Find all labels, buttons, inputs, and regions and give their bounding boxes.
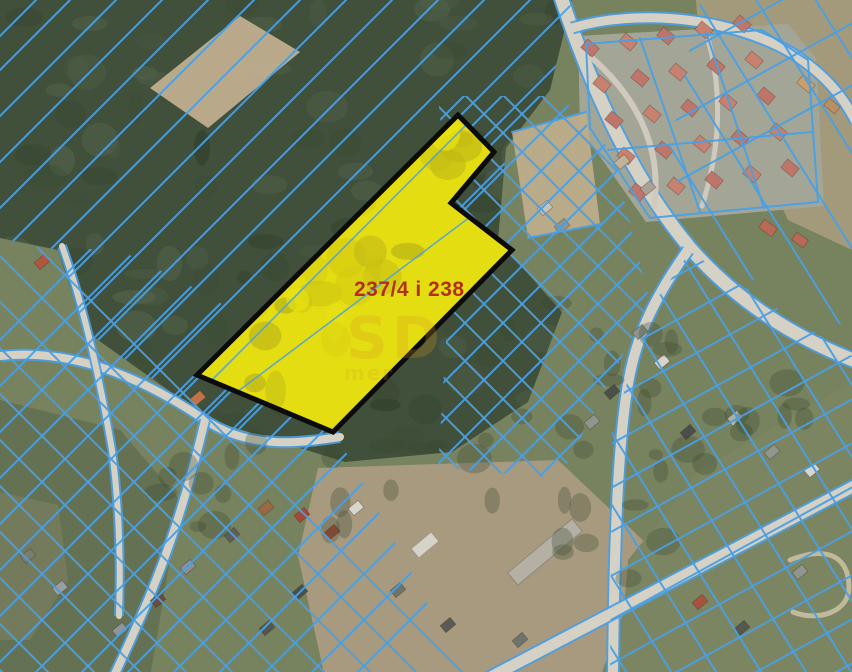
watermark-subtext: mer xyxy=(344,361,394,385)
map-viewport[interactable]: SD mer 237/4 i 238 xyxy=(0,0,852,672)
parcel-label: 237/4 i 238 xyxy=(354,278,465,301)
satellite-map: SD mer 237/4 i 238 xyxy=(0,0,852,672)
